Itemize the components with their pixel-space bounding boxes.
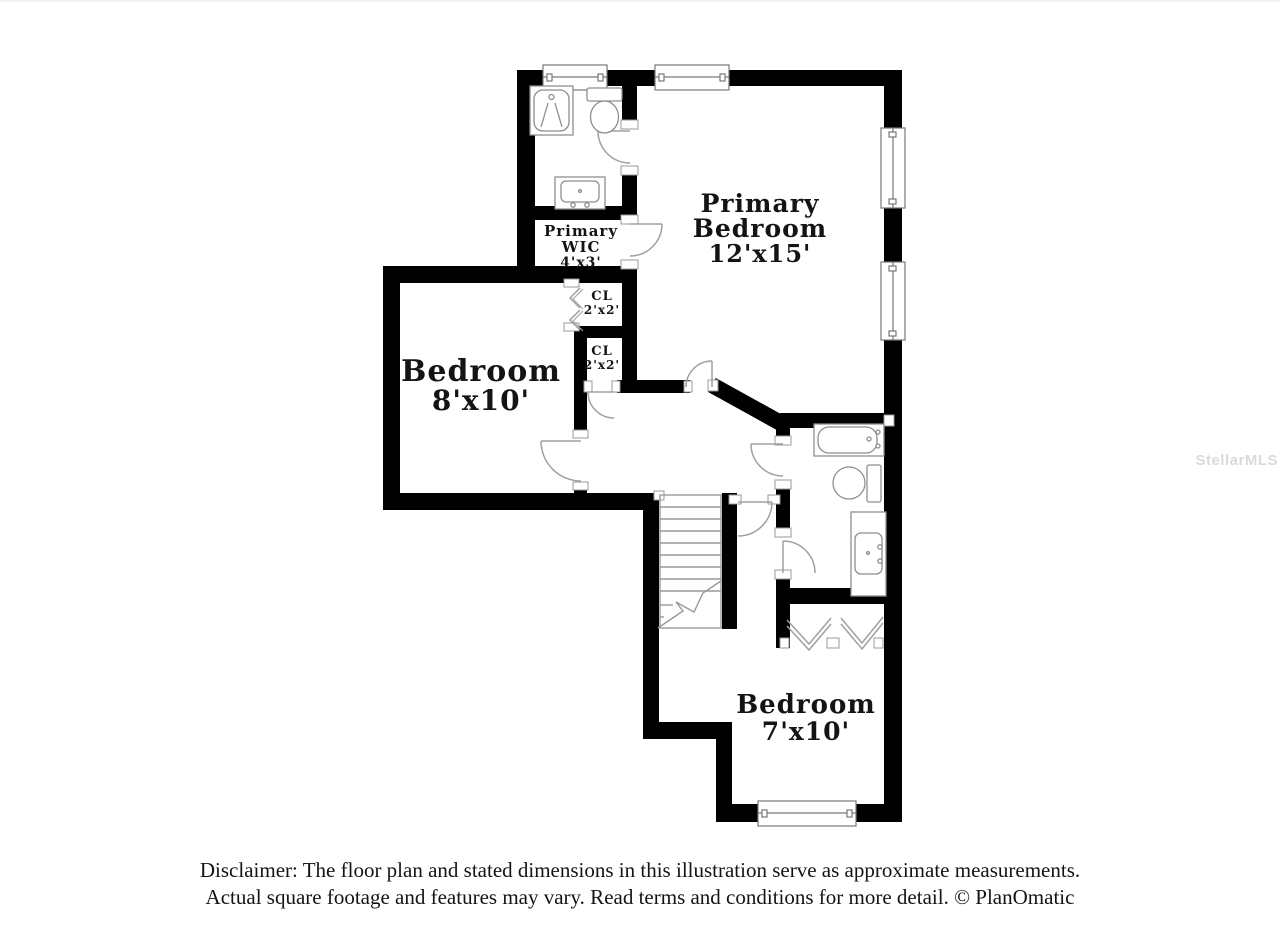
- wall-segment: [617, 380, 690, 393]
- door-post: [884, 415, 894, 426]
- door-post: [573, 430, 588, 438]
- door-post: [775, 480, 791, 489]
- door-swing-bathroom-lower: [783, 541, 815, 573]
- disclaimer-line-2: Actual square footage and features may v…: [0, 884, 1280, 911]
- room-label-primary-bedroom: Primary Bedroom 12'x15': [693, 189, 828, 268]
- svg-text:WIC: WIC: [561, 238, 601, 256]
- room-label-closet-lower: CL 2'x2': [584, 344, 620, 372]
- door-swing-hall-stairs: [738, 502, 772, 536]
- door-swing-closet-lower: [588, 392, 614, 418]
- svg-text:4'x3': 4'x3': [560, 255, 601, 271]
- toilet-fixture: [587, 88, 622, 133]
- wall-segment: [776, 482, 790, 534]
- bathtub-fixture: [814, 424, 884, 456]
- svg-text:7'x10': 7'x10': [762, 717, 850, 746]
- door-post: [564, 279, 579, 287]
- vanity-sink-fixture: [555, 177, 605, 209]
- room-label-closet-upper: CL 2'x2': [584, 289, 620, 317]
- room-label-bedroom-8x10: Bedroom 8'x10': [401, 354, 561, 417]
- room-label-bedroom-7x10: Bedroom 7'x10': [736, 690, 876, 746]
- mls-watermark: StellarMLS: [1195, 452, 1278, 469]
- door-post: [573, 482, 588, 490]
- floor-plan-drawing: Primary Bedroom 12'x15' Primary WIC 4'x3…: [0, 0, 1280, 930]
- window: [881, 128, 905, 208]
- window: [758, 801, 856, 826]
- svg-text:2'x2': 2'x2': [584, 358, 620, 372]
- door-post: [684, 381, 692, 392]
- door-post: [708, 380, 718, 391]
- door-post: [780, 638, 789, 648]
- disclaimer-line-1: Disclaimer: The floor plan and stated di…: [0, 857, 1280, 884]
- wall-segment: [722, 493, 737, 629]
- wall-segment: [574, 326, 637, 338]
- door-post: [621, 260, 638, 269]
- wall-segment: [383, 493, 659, 510]
- wall-segment-diagonal: [712, 385, 786, 426]
- door-post: [621, 215, 638, 224]
- door-post: [621, 166, 638, 175]
- window: [881, 262, 905, 340]
- door-post: [612, 381, 620, 392]
- wall-segment: [643, 493, 659, 739]
- door-swing-bathroom-upper: [751, 444, 783, 476]
- room-label-primary-wic: Primary WIC 4'x3': [544, 222, 618, 271]
- wall-segment: [383, 266, 400, 510]
- door-post: [874, 638, 883, 648]
- door-swing-bedroom-8x10: [541, 441, 581, 481]
- stairs: [658, 495, 721, 628]
- shower-fixture: [530, 86, 573, 135]
- door-swing-primary-wic: [630, 224, 662, 256]
- toilet-fixture: [833, 465, 881, 502]
- wall-segment: [716, 722, 732, 822]
- door-post: [775, 528, 791, 537]
- window: [655, 65, 729, 90]
- svg-text:12'x15': 12'x15': [709, 239, 812, 268]
- svg-text:2'x2': 2'x2': [584, 303, 620, 317]
- svg-text:CL: CL: [591, 344, 613, 359]
- svg-text:Bedroom: Bedroom: [736, 690, 876, 720]
- door-swing-primary-bathroom: [598, 131, 630, 163]
- disclaimer: Disclaimer: The floor plan and stated di…: [0, 857, 1280, 911]
- svg-text:CL: CL: [591, 289, 613, 304]
- image-edge: [0, 0, 1280, 2]
- door-post: [827, 638, 839, 648]
- door-post: [584, 381, 592, 392]
- svg-text:8'x10': 8'x10': [432, 384, 530, 417]
- door-post: [621, 120, 638, 129]
- vanity-sink-fixture: [851, 512, 886, 596]
